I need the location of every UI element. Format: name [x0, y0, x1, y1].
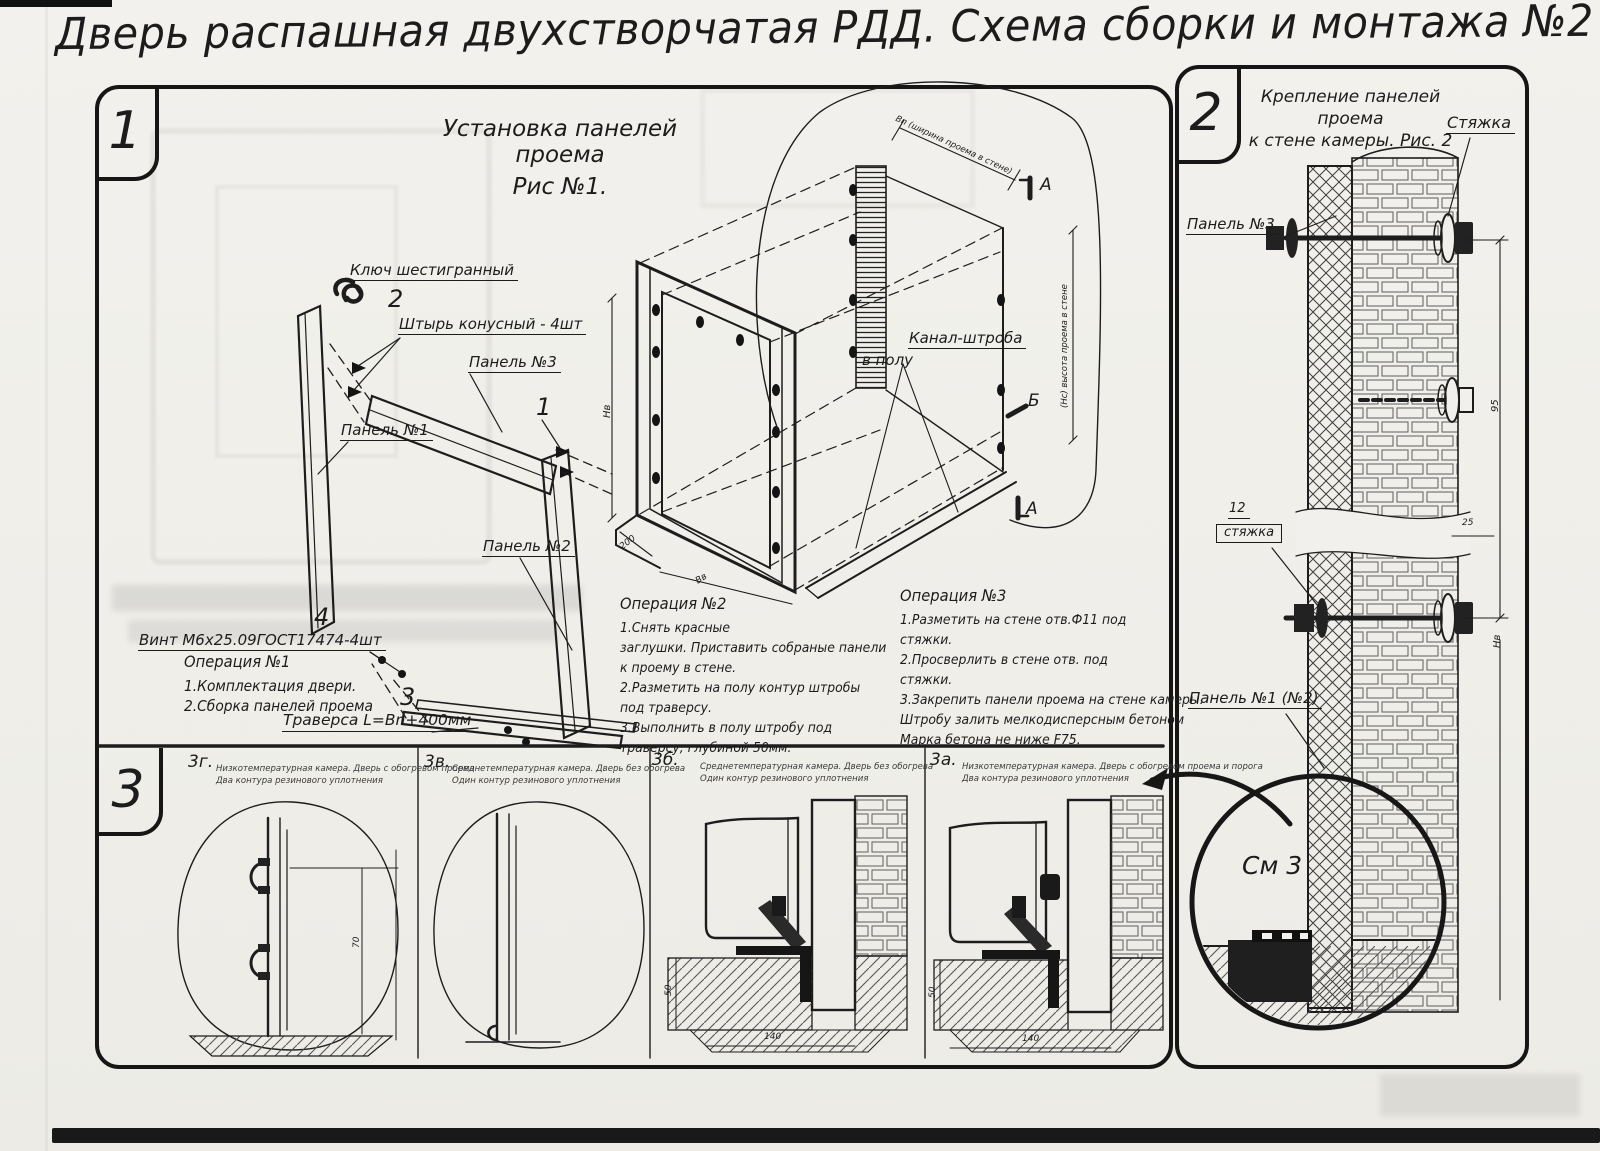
operation-3-line: стяжки. — [900, 630, 1204, 650]
fig1-title: Установка панелей проема Рис №1. — [395, 116, 725, 200]
fig2-title-line1: Крепление панелей проема — [1248, 86, 1453, 130]
detail-reference-see3: См 3 — [1242, 852, 1302, 881]
desc-line: Среднетемпературная камера. Дверь без об… — [452, 763, 685, 775]
callout-panel1: Панель №1 — [340, 422, 433, 441]
operation-2-line: 3.Выполнить в полу штробу под — [620, 718, 886, 738]
fig3-drawings — [99, 746, 1163, 1058]
operation-3-line: 1.Разметить на стене отв.Ф11 под — [900, 610, 1204, 630]
callout-panel3: Панель №3 — [468, 354, 561, 373]
section-marker-a-top: А — [1040, 176, 1052, 196]
callout-number-3: 3 — [400, 684, 415, 712]
desc-line: Один контур резинового уплотнения — [700, 773, 933, 785]
fig1-badge: 1 — [95, 85, 159, 181]
fig3-panel-desc: Низкотемпературная камера. Дверь с обогр… — [962, 761, 1263, 785]
fig2-title: Крепление панелей проема к стене камеры.… — [1248, 86, 1453, 152]
drawing-linework — [0, 0, 1600, 1151]
operation-1-title: Операция №1 — [184, 652, 373, 671]
fig3-panel-desc: Среднетемпературная камера. Дверь без об… — [452, 763, 685, 787]
callout-tie-position-number: 12 — [1228, 502, 1250, 519]
operation-2-line: 2.Разметить на полу контур штробы — [620, 678, 886, 698]
desc-line: Два контура резинового уплотнения — [962, 773, 1263, 785]
operation-3-line: Штробу залить мелкодисперсным бетоном — [900, 710, 1204, 730]
operation-1-line: 1.Комплектация двери. — [184, 676, 373, 696]
callout-hex-key: Ключ шестигранный — [349, 262, 518, 281]
operation-2-line: заглушки. Приставить собраные панели — [620, 638, 886, 658]
dim-25: 25 — [1462, 518, 1473, 528]
fig1-title-line1: Установка панелей проема — [395, 116, 725, 168]
operation-3-title: Операция №3 — [900, 586, 1204, 605]
callout-number-4: 4 — [314, 604, 329, 632]
callout-pin: Штырь конусный - 4шт — [398, 316, 586, 335]
operation-2-line: к проему в стене. — [620, 658, 886, 678]
dim-70: 70 — [352, 937, 362, 948]
callout-channel-line1: Канал-штроба — [908, 330, 1026, 349]
callout-panel2: Панель №2 — [482, 538, 575, 557]
desc-line: Два контура резинового уплотнения — [216, 775, 475, 787]
operation-3-line: Марка бетона не ниже F75. — [900, 730, 1204, 750]
fig3-badge: 3 — [97, 748, 163, 836]
callout-tie-boxed: стяжка — [1216, 524, 1282, 543]
fig1-title-line2: Рис №1. — [395, 174, 725, 200]
fig3-panel-id: 3а. — [930, 750, 957, 770]
callout-number-2: 2 — [388, 286, 403, 314]
operation-3-line: 3.Закрепить панели проема на стене камер… — [900, 690, 1204, 710]
operation-1-block: Операция №1 1.Комплектация двери. 2.Сбор… — [184, 652, 373, 716]
scanned-drawing-page: { "title": "Дверь распашная двухстворчат… — [0, 0, 1600, 1151]
fig2-drawing — [1142, 138, 1508, 1030]
dim-hv-fig2: Нв — [1492, 635, 1503, 648]
fig3-panel-id: 3б. — [652, 750, 679, 770]
callout-tie-top: Стяжка — [1446, 114, 1515, 134]
fig3-panel-id: 3в. — [424, 752, 450, 772]
callout-screw: Винт М6х25.09ГОСТ17474-4шт — [138, 632, 386, 651]
operation-3-line: стяжки. — [900, 670, 1204, 690]
callout-fig2-panel3: Панель №3 — [1186, 216, 1279, 235]
assembled-frame-drawing — [608, 262, 795, 604]
operation-3-line: 2.Просверлить в стене отв. под — [900, 650, 1204, 670]
callout-fig2-panel12: Панель №1 (№2) — [1188, 690, 1322, 709]
dim-140: 140 — [1022, 1034, 1039, 1044]
callout-channel-line2: в полу — [862, 352, 913, 369]
dim-50: 50 — [664, 985, 674, 996]
section-marker-a-bottom: А — [1026, 500, 1038, 520]
dim-frame-height: Нв — [602, 405, 613, 418]
desc-line: Один контур резинового уплотнения — [452, 775, 685, 787]
operation-2-block: Операция №2 1.Снять красные заглушки. Пр… — [620, 594, 886, 758]
operation-2-line: под траверсу. — [620, 698, 886, 718]
operation-3-block: Операция №3 1.Разметить на стене отв.Ф11… — [900, 586, 1204, 750]
fig3-panel-desc: Среднетемпературная камера. Дверь без об… — [700, 761, 933, 785]
operation-2-line: 1.Снять красные — [620, 618, 886, 638]
dim-140: 140 — [764, 1032, 781, 1042]
callout-number-1: 1 — [536, 394, 551, 422]
dim-50: 50 — [928, 987, 938, 998]
operation-2-title: Операция №2 — [620, 594, 886, 613]
fig2-title-line2: к стене камеры. Рис. 2 — [1248, 130, 1453, 152]
section-marker-b: Б — [1028, 392, 1040, 412]
dim-opening-height: (Нс) высота проема в стене — [1060, 284, 1070, 408]
fig2-badge-number: 2 — [1189, 83, 1222, 143]
operation-1-line: 2.Сборка панелей проема — [184, 696, 373, 716]
fig1-badge-number: 1 — [108, 101, 141, 161]
desc-line: Низкотемпературная камера. Дверь с обогр… — [962, 761, 1263, 773]
fig3-badge-number: 3 — [111, 760, 144, 820]
dim-95: 95 — [1490, 399, 1501, 412]
desc-line: Среднетемпературная камера. Дверь без об… — [700, 761, 933, 773]
fig3-panel-id: 3г. — [188, 752, 213, 772]
fig2-badge: 2 — [1175, 65, 1241, 164]
